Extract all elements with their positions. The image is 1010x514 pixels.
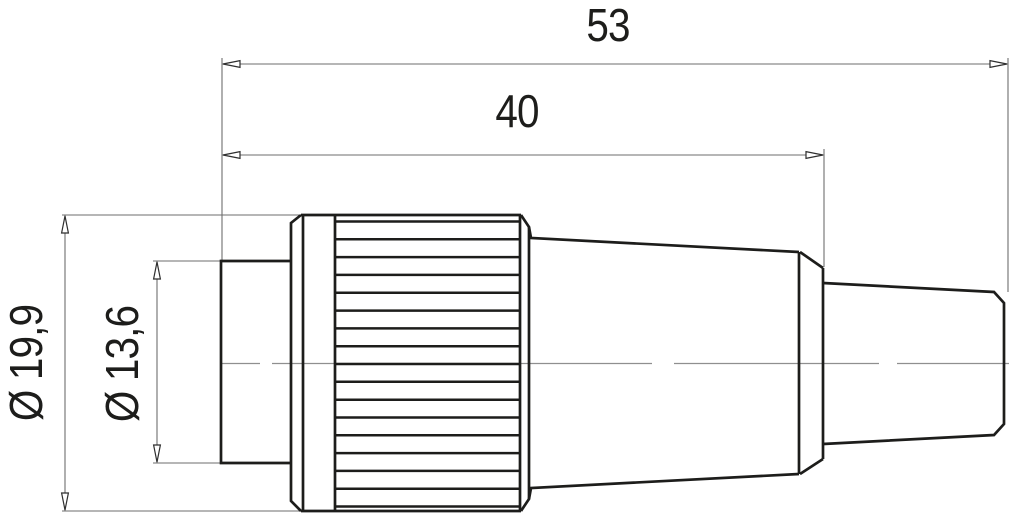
front-plug [221,261,291,463]
dimension-front-diameter [153,261,221,463]
arrow-up-icon [62,216,69,233]
knurl-ridges [335,222,520,507]
arrow-down-icon [154,445,161,462]
arrow-right-icon [990,61,1007,68]
dim-label-outer-diameter: Ø 19,9 [2,305,53,421]
dim-label-grip-length: 40 [495,87,538,138]
arrow-left-icon [223,61,240,68]
arrow-left-icon [223,152,240,159]
arrow-down-icon [62,493,69,510]
dim-label-total-length: 53 [586,1,629,52]
arrow-up-icon [154,262,161,279]
connector-dimension-drawing: 53 40 Ø 19,9 Ø 13,6 [0,0,1010,514]
dim-label-front-diameter: Ø 13,6 [98,306,149,422]
arrow-right-icon [806,152,823,159]
technical-drawing-canvas: 53 40 Ø 19,9 Ø 13,6 [0,0,1010,514]
